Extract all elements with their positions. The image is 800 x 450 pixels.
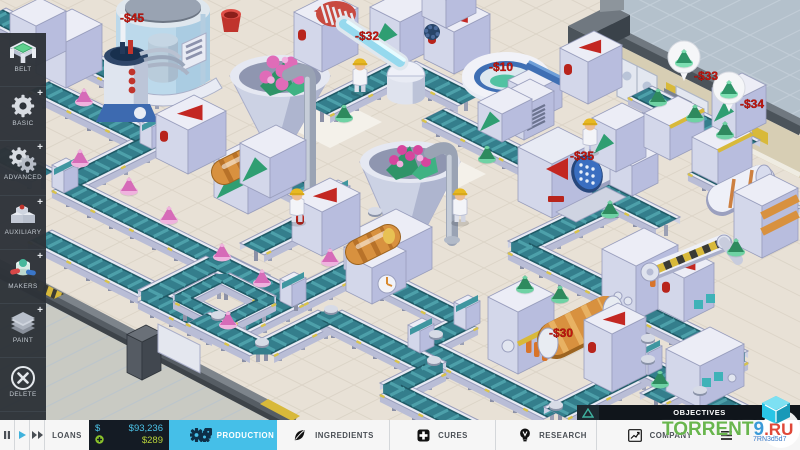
svg-text:-$35: -$35 [570,149,594,163]
svg-text:-$10: -$10 [489,60,513,74]
svg-text:-$33: -$33 [694,69,718,83]
svg-text:-$34: -$34 [740,97,764,111]
svg-text:-$45: -$45 [120,11,144,25]
svg-text:-$30: -$30 [549,326,573,340]
svg-text:-$32: -$32 [355,29,379,43]
